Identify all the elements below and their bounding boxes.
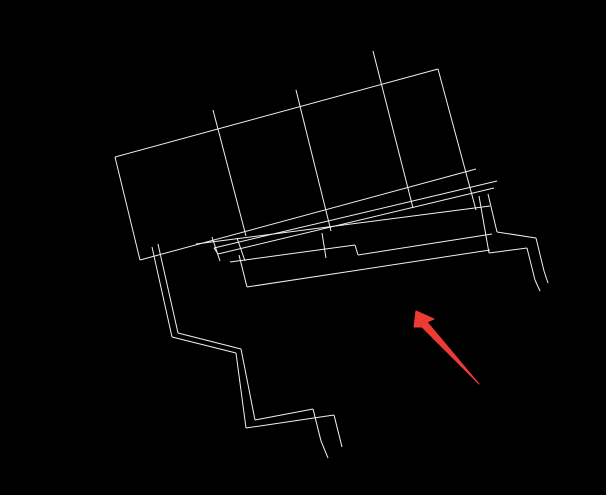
drawing-background <box>0 0 606 495</box>
cad-drawing-canvas[interactable] <box>0 0 606 495</box>
cad-viewport <box>0 0 606 495</box>
